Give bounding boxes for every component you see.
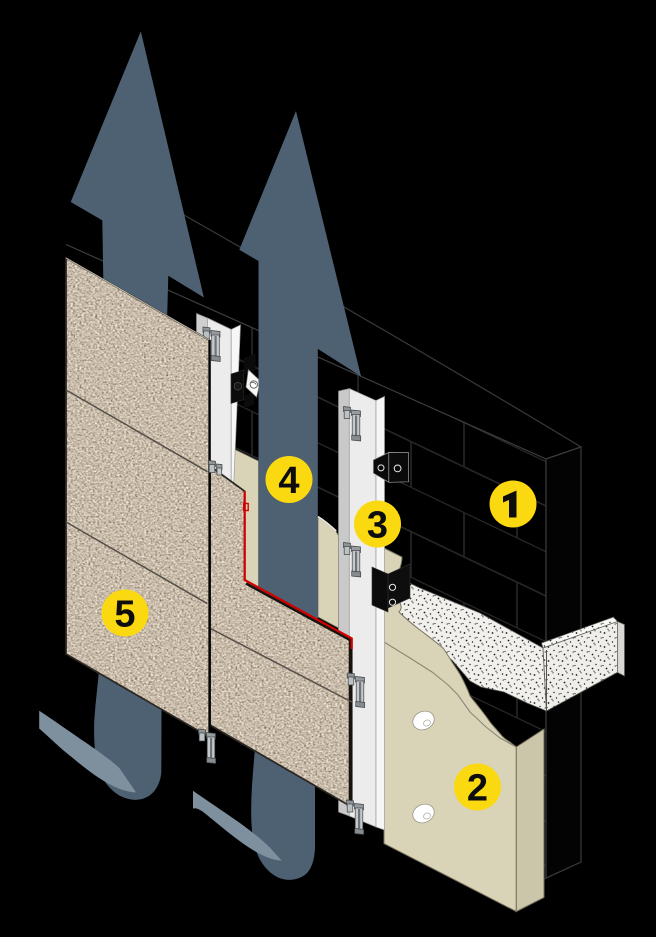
- svg-text:3: 3: [367, 505, 388, 547]
- svg-text:5: 5: [114, 594, 135, 636]
- svg-text:2: 2: [467, 768, 488, 810]
- svg-text:4: 4: [278, 460, 299, 502]
